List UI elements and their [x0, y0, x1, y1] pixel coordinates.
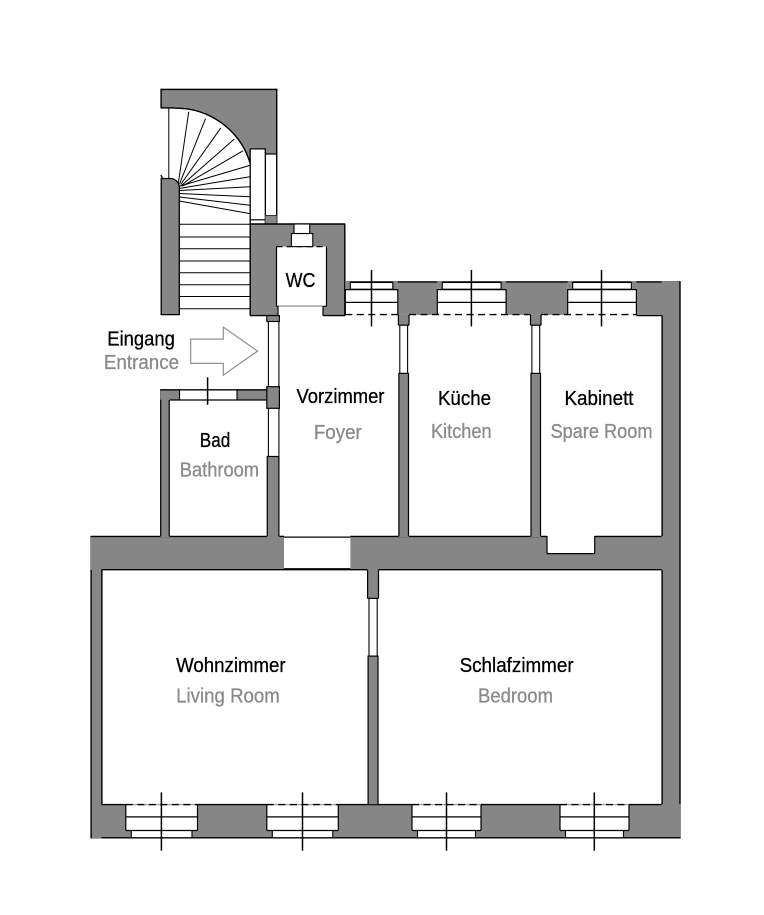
svg-text:Bedroom: Bedroom — [478, 685, 553, 708]
svg-text:Wohnzimmer: Wohnzimmer — [176, 654, 286, 677]
svg-text:WC: WC — [286, 269, 316, 292]
svg-text:Küche: Küche — [438, 387, 491, 410]
svg-text:Kabinett: Kabinett — [564, 387, 633, 410]
svg-text:Spare Room: Spare Room — [550, 420, 652, 443]
svg-text:Entrance: Entrance — [104, 351, 179, 374]
svg-text:Vorzimmer: Vorzimmer — [297, 385, 385, 408]
svg-text:Bad: Bad — [200, 429, 230, 452]
svg-text:Living Room: Living Room — [176, 685, 280, 708]
svg-text:Eingang: Eingang — [107, 328, 175, 351]
svg-text:Foyer: Foyer — [314, 421, 362, 444]
svg-text:Kitchen: Kitchen — [431, 420, 492, 443]
svg-text:Bathroom: Bathroom — [180, 458, 259, 481]
svg-text:Schlafzimmer: Schlafzimmer — [460, 654, 574, 677]
